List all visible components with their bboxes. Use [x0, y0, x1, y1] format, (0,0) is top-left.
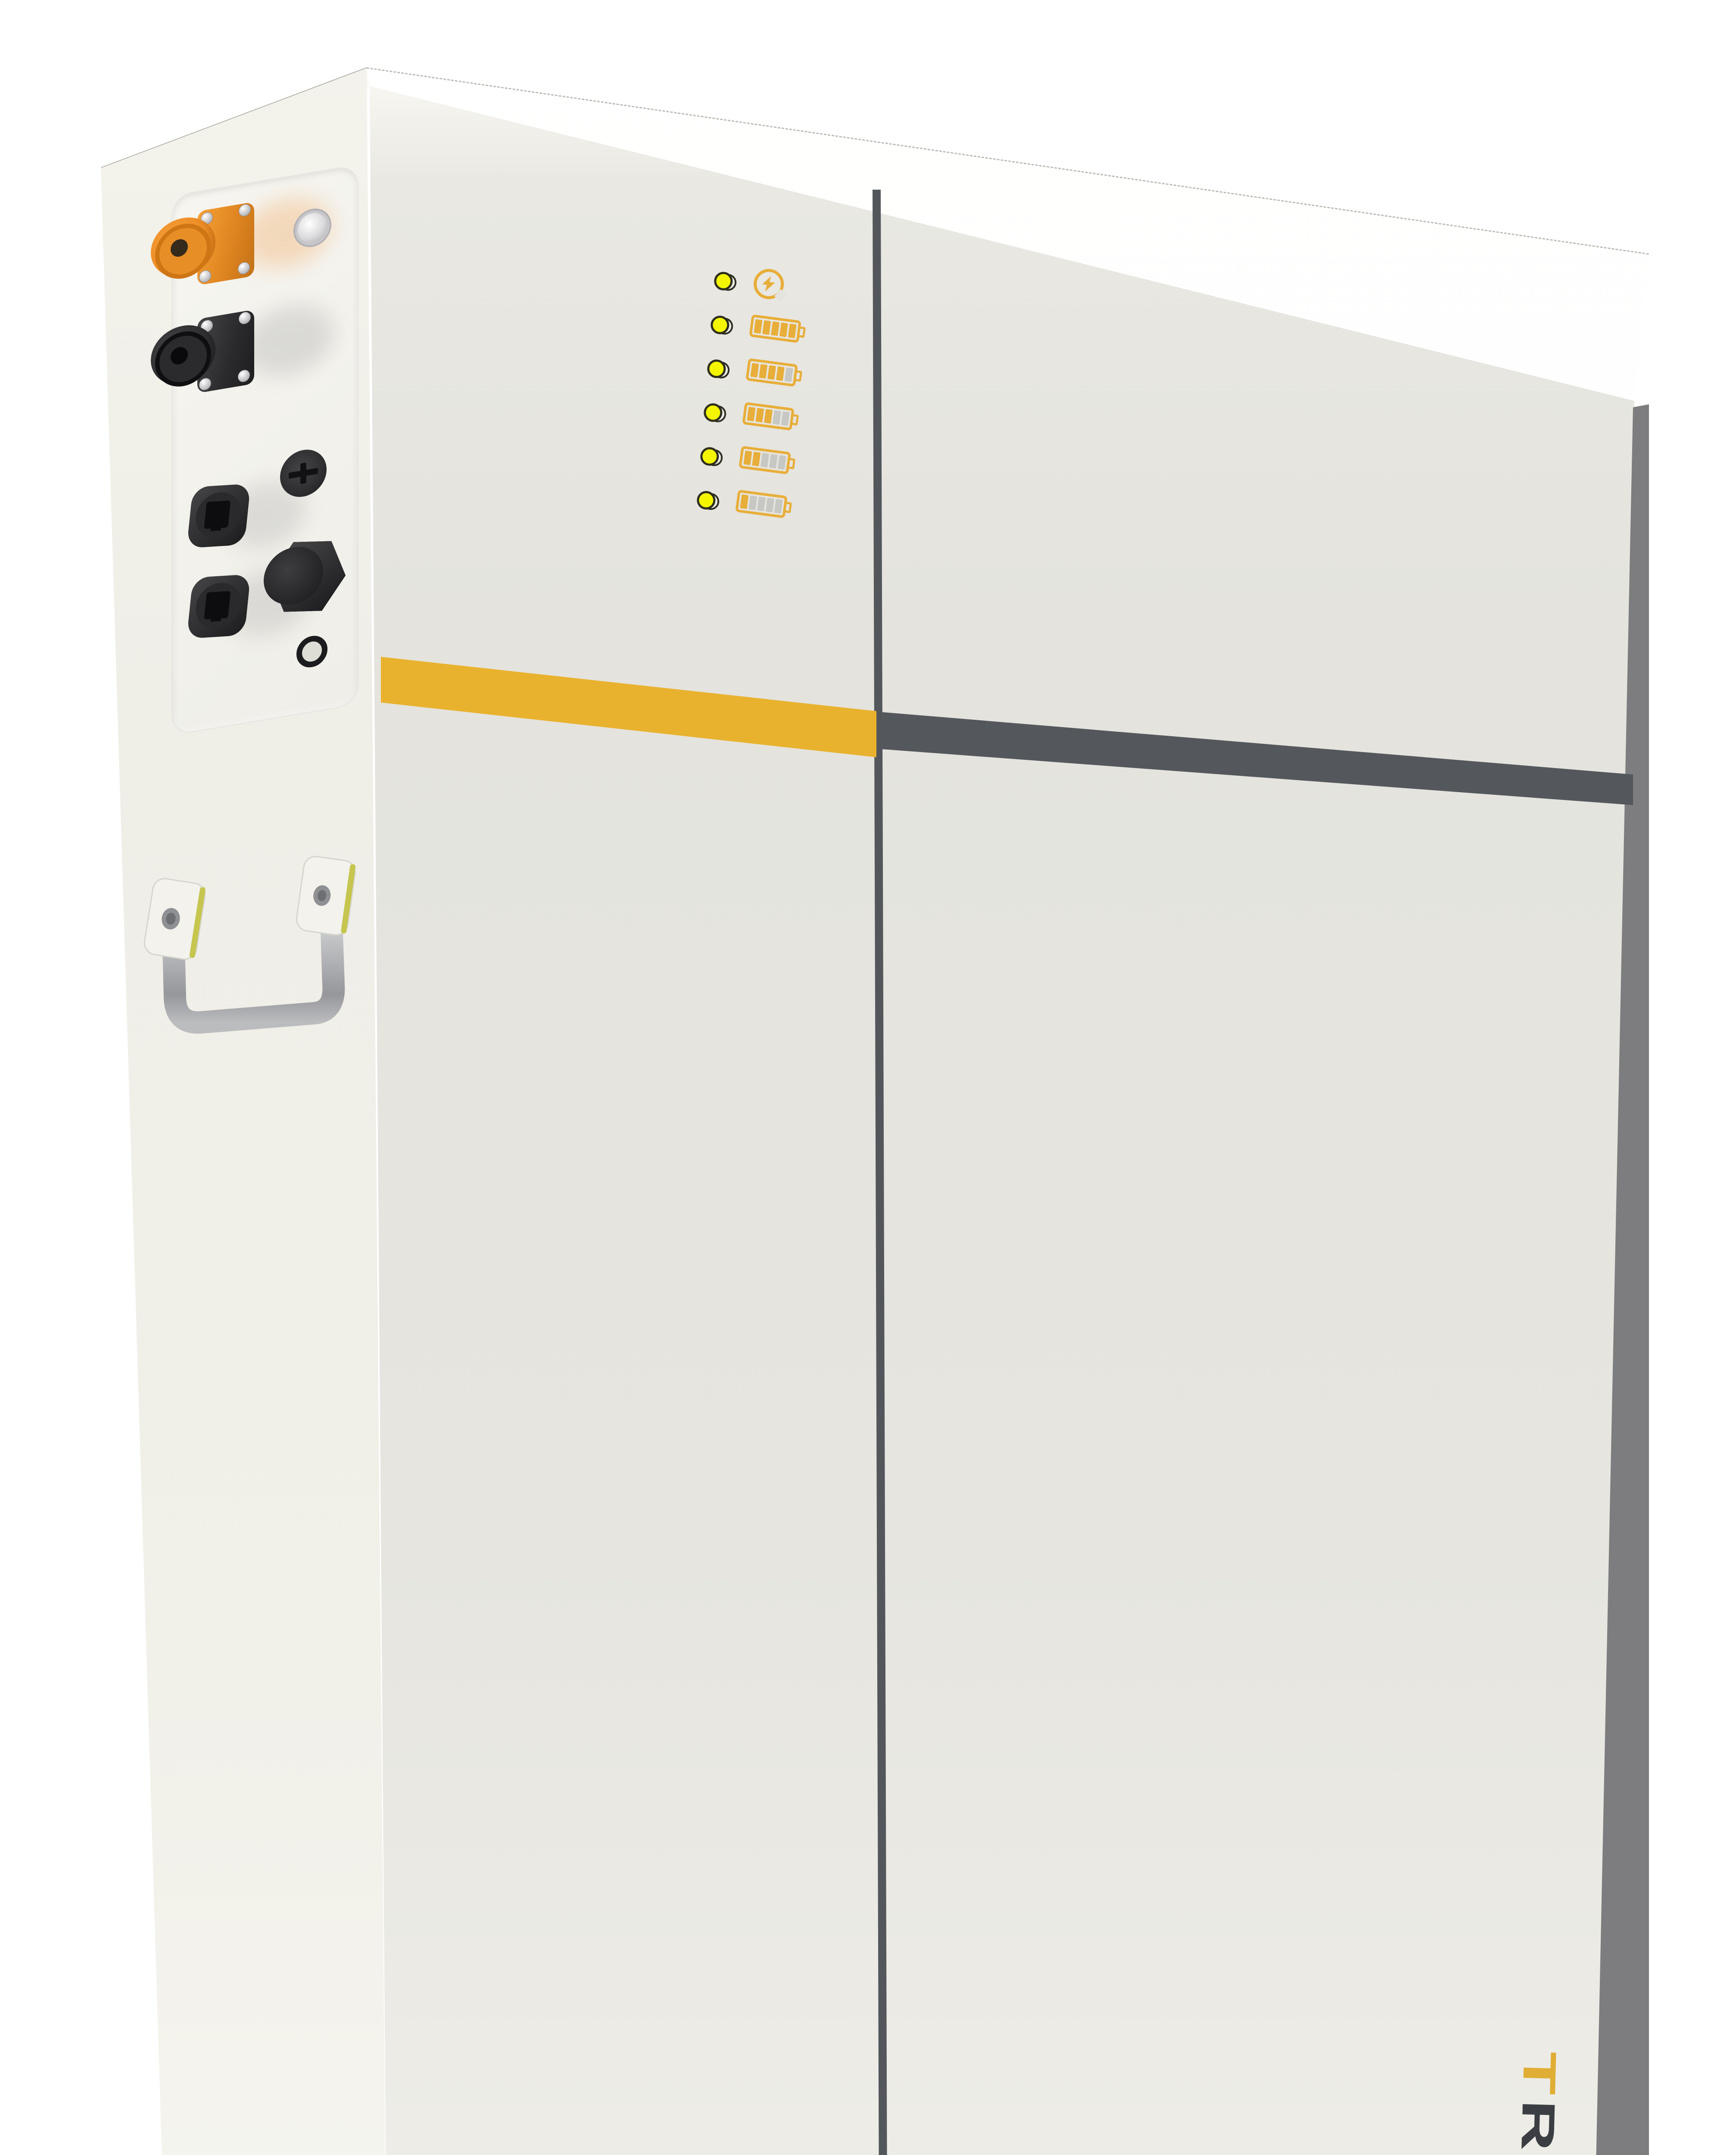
vent-grommet: [296, 634, 327, 670]
charge-circle-icon: [752, 267, 786, 301]
logo-letter-t: T: [1513, 2051, 1566, 2100]
battery-level-icon: [739, 446, 791, 475]
status-led: [714, 270, 737, 291]
screw-icon: [199, 377, 211, 391]
indicator-row: [687, 354, 835, 390]
indicator-row: [694, 266, 842, 302]
screw-icon: [199, 269, 211, 284]
handle-bracket-right: [295, 856, 357, 937]
status-led: [710, 314, 734, 335]
screw-icon: [239, 203, 251, 218]
battery-level-icon: [735, 490, 788, 518]
screw-icon: [238, 369, 250, 383]
logo-riple: RIPLE: [1507, 2099, 1565, 2155]
indicator-panel: [674, 253, 843, 548]
indicator-row: [679, 441, 827, 477]
page-background: { "scene": { "description": "White wall-…: [0, 0, 1736, 2155]
status-led: [696, 490, 720, 510]
battery-level-icon: [749, 314, 801, 343]
slot-icon: [300, 462, 306, 484]
comm-rj45-port-1: [187, 484, 251, 548]
indicator-row: [683, 398, 831, 434]
status-led: [700, 446, 723, 466]
indicator-row: [676, 485, 824, 521]
carry-handle: [129, 856, 371, 1080]
screw-cap: [280, 446, 327, 500]
brand-logo: TRIPLE POWER: [1455, 2049, 1557, 2155]
rj45-jack-icon: [204, 591, 231, 619]
rj45-jack-icon: [204, 500, 231, 529]
battery-level-icon: [742, 402, 795, 431]
screw-icon: [239, 311, 251, 325]
status-led: [703, 402, 727, 422]
screw-icon: [238, 261, 250, 275]
battery-level-icon: [745, 358, 798, 387]
logo-triple: TRIPLE: [1509, 2051, 1563, 2155]
status-led: [707, 358, 730, 379]
connector-panel: [172, 165, 358, 735]
indicator-row: [690, 310, 838, 346]
handle-bracket-left: [143, 877, 206, 961]
comm-rj45-port-2: [187, 574, 251, 639]
